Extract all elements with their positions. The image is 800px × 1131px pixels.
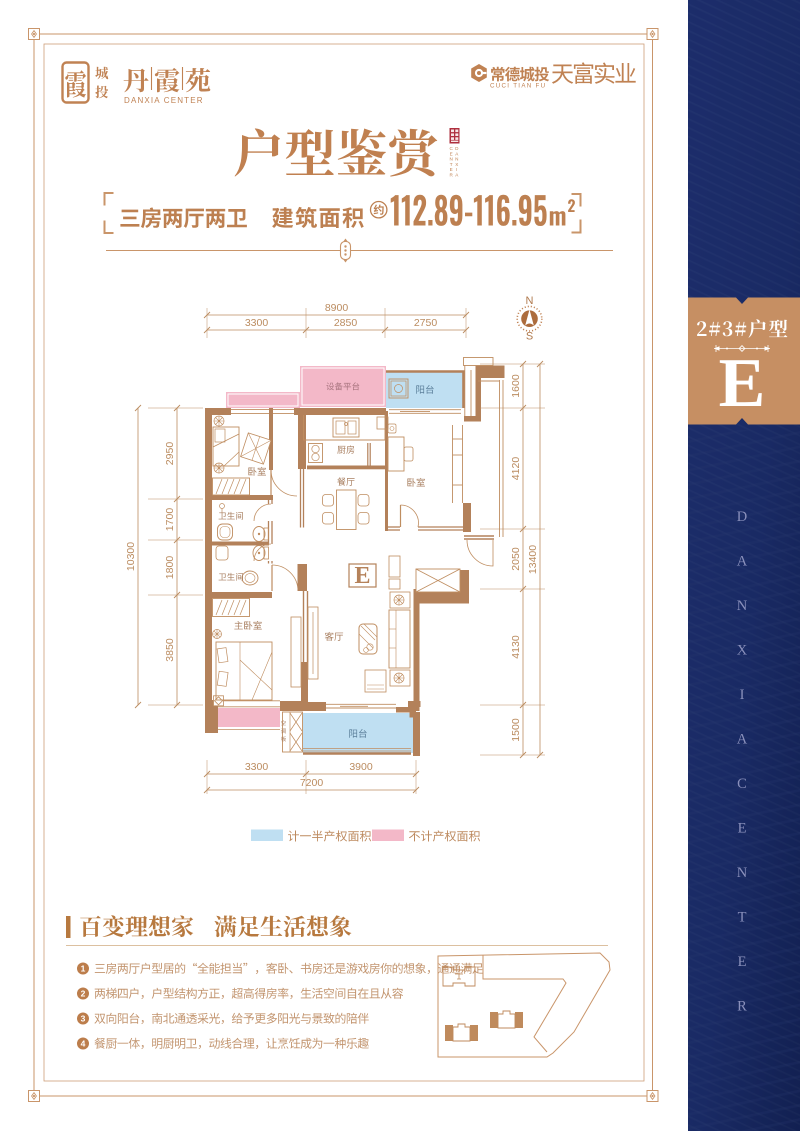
svg-text:2950: 2950 [164, 442, 176, 466]
svg-text:2750: 2750 [414, 317, 438, 329]
svg-text:2850: 2850 [334, 317, 358, 329]
svg-text:N: N [526, 295, 534, 307]
svg-text:N: N [455, 157, 458, 162]
svg-text:X: X [455, 162, 458, 167]
svg-text:E: E [738, 821, 747, 837]
svg-text:4120: 4120 [510, 457, 522, 481]
svg-text:3900: 3900 [349, 761, 373, 773]
svg-text:X: X [737, 643, 748, 659]
svg-text:7200: 7200 [300, 777, 324, 789]
svg-text:3300: 3300 [245, 317, 269, 329]
svg-text:4: 4 [81, 1039, 86, 1049]
svg-text:T: T [738, 910, 747, 926]
svg-text:3300: 3300 [245, 761, 269, 773]
svg-text:E: E [450, 151, 453, 156]
svg-text:A: A [737, 732, 748, 748]
svg-text:E: E [450, 167, 453, 172]
svg-text:1: 1 [81, 964, 86, 974]
svg-text:8900: 8900 [325, 302, 349, 314]
svg-text:4130: 4130 [510, 635, 522, 659]
svg-text:13400: 13400 [527, 545, 539, 574]
svg-text:1500: 1500 [510, 718, 522, 742]
svg-text:1600: 1600 [510, 374, 522, 398]
svg-text:10300: 10300 [125, 542, 137, 571]
svg-text:N: N [737, 598, 748, 614]
svg-text:R: R [737, 999, 747, 1015]
svg-text:DANXIA CENTER: DANXIA CENTER [124, 96, 205, 105]
svg-text:E: E [354, 563, 370, 589]
svg-text:E: E [738, 954, 747, 970]
svg-text:N: N [737, 865, 748, 881]
svg-text:T: T [450, 162, 453, 167]
svg-text:A: A [737, 554, 748, 570]
svg-text:I: I [740, 687, 745, 703]
svg-text:1800: 1800 [164, 556, 176, 580]
svg-text:N: N [450, 157, 453, 162]
svg-text:3850: 3850 [164, 638, 176, 662]
svg-text:3: 3 [81, 1014, 86, 1024]
svg-text:2050: 2050 [510, 547, 522, 571]
svg-text:I: I [456, 167, 457, 172]
svg-text:D: D [737, 509, 747, 525]
svg-text:2: 2 [81, 989, 86, 999]
svg-text:CUCI TIAN FU: CUCI TIAN FU [490, 83, 546, 90]
svg-text:1700: 1700 [164, 508, 176, 532]
svg-text:E: E [719, 345, 766, 422]
svg-text:S: S [526, 331, 533, 343]
svg-text:C: C [737, 776, 747, 792]
